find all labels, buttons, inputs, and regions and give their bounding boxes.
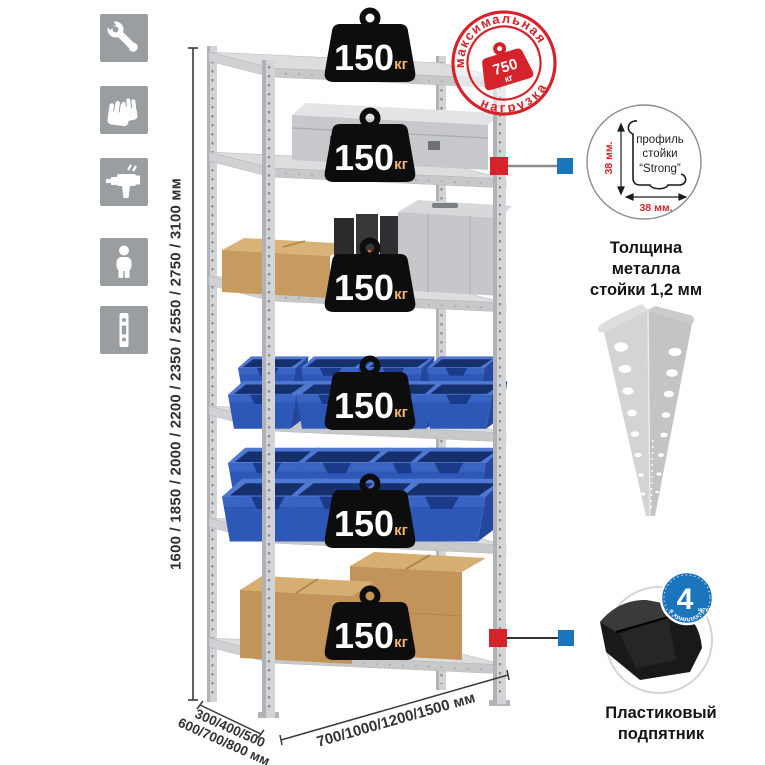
thickness-caption: Толщина металла стойки 1,2 мм (587, 238, 706, 301)
capacity-unit: кг (394, 404, 408, 421)
foot-caption-line2: подпятник (605, 724, 716, 745)
capacity-value: 150 (334, 267, 394, 308)
height-dimension-label: 1600 / 1850 / 2000 / 2200 / 2350 / 2550 … (168, 178, 185, 570)
weight-badge-1: 150 кг (325, 11, 416, 83)
badge-count: 4 (677, 583, 694, 616)
profile-label-2: стойки (642, 148, 677, 160)
thickness-caption-line1: Толщина металла (587, 238, 706, 280)
marker-blue-square (557, 158, 573, 174)
capacity-value: 150 (334, 385, 394, 426)
connector-top (490, 157, 573, 175)
capacity-value: 150 (334, 503, 394, 544)
foot-caption-line1: Пластиковый (605, 703, 716, 724)
connector-bottom (489, 629, 574, 647)
max-load-stamp: максимальная нагрузка 750 кг (440, 0, 569, 128)
angle-post-image (598, 304, 694, 516)
capacity-unit: кг (394, 56, 408, 73)
marker-red-square (490, 157, 508, 175)
product-infographic: 150 кг 150 кг 150 кг 150 кг (0, 0, 765, 765)
thickness-caption-line2: стойки 1,2 мм (587, 280, 706, 301)
foot-caption: Пластиковый подпятник (605, 703, 716, 745)
capacity-unit: кг (394, 286, 408, 303)
profile-detail-circle: 38 мм. 38 мм. профиль стойки “Strong” (587, 105, 701, 219)
capacity-unit: кг (394, 522, 408, 539)
capacity-value: 150 (334, 615, 394, 656)
included-badge: 4 штуки в комплекте (661, 572, 715, 624)
capacity-value: 150 (334, 37, 394, 78)
capacity-unit: кг (394, 634, 408, 651)
marker-blue-square (558, 630, 574, 646)
profile-label-3: “Strong” (639, 163, 681, 175)
marker-red-square (489, 629, 507, 647)
profile-dim-vertical: 38 мм. (603, 141, 615, 174)
height-dimension-line (188, 48, 198, 700)
foot-detail-circle: 4 штуки в комплекте (600, 572, 715, 693)
profile-dim-horizontal: 38 мм. (639, 202, 672, 214)
capacity-unit: кг (394, 156, 408, 173)
capacity-value: 150 (334, 137, 394, 178)
rack-illustration: 150 кг 150 кг 150 кг 150 кг (0, 0, 765, 765)
profile-label-1: профиль (636, 134, 684, 146)
